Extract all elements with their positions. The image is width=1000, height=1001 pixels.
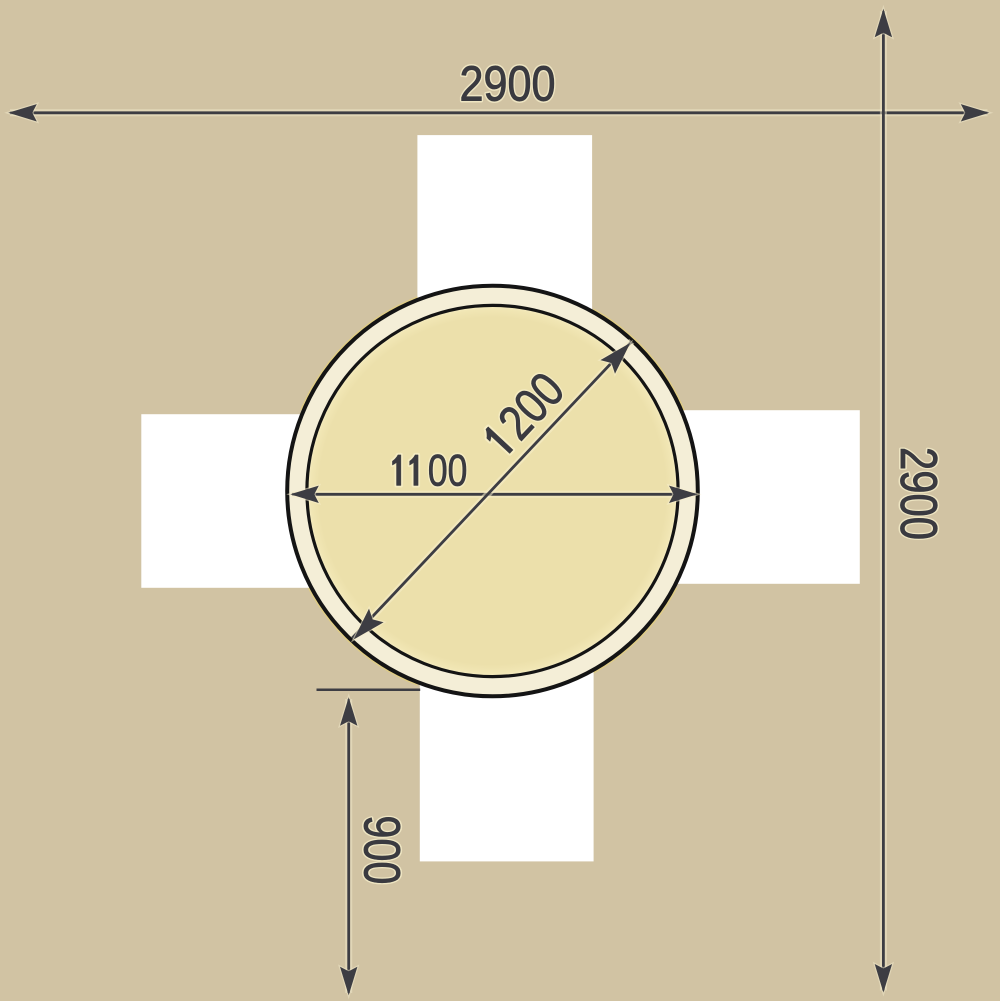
svg-text:900: 900 bbox=[354, 815, 411, 884]
svg-text:2900: 2900 bbox=[889, 447, 947, 540]
svg-text:00: 00 bbox=[428, 447, 468, 496]
svg-text:2900: 2900 bbox=[460, 56, 556, 111]
